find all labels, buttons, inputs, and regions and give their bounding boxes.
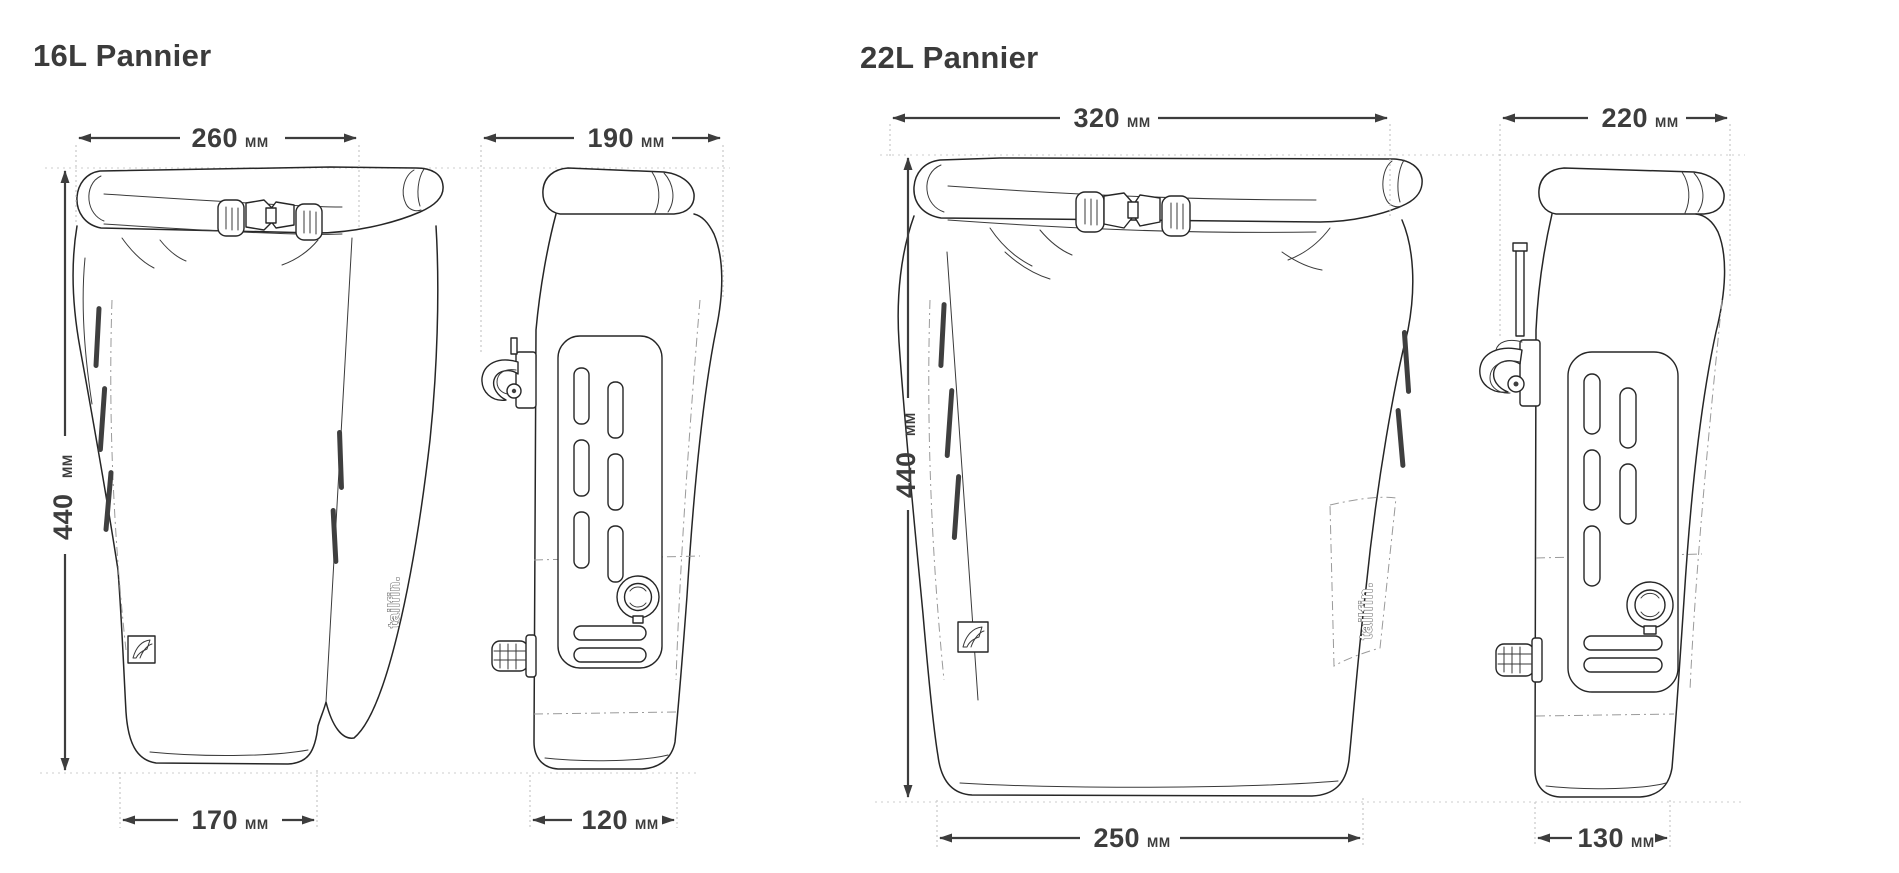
svg-text:170: 170 xyxy=(191,805,238,835)
svg-text:MM: MM xyxy=(1127,115,1151,130)
dim-22l-side-top-width: 220 MM xyxy=(1503,103,1727,133)
pannier-16l-side-view xyxy=(482,168,722,769)
pannier-22l-title: 22L Pannier xyxy=(860,40,1038,75)
qr-hook xyxy=(482,338,536,408)
svg-text:320: 320 xyxy=(1073,103,1120,133)
pannier-22l-side-view xyxy=(1480,168,1725,797)
pannier-16l-title: 16L Pannier xyxy=(33,38,211,73)
mounting-plate xyxy=(558,336,662,668)
svg-text:250: 250 xyxy=(1093,823,1140,853)
dim-22l-height: 440 MM xyxy=(891,158,921,797)
svg-text:260: 260 xyxy=(191,123,238,153)
mounting-plate xyxy=(1568,352,1678,692)
svg-text:MM: MM xyxy=(245,817,269,832)
svg-text:tailfin.: tailfin. xyxy=(386,576,403,628)
svg-text:tailfin.: tailfin. xyxy=(1356,582,1376,640)
roll-top-strap xyxy=(948,186,1316,236)
dim-22l-side-bottom-width: 130 MM xyxy=(1538,823,1667,853)
svg-text:MM: MM xyxy=(1655,115,1679,130)
svg-text:MM: MM xyxy=(245,135,269,150)
svg-text:MM: MM xyxy=(641,135,665,150)
pannier-22l: tailfin. xyxy=(890,103,1730,853)
dim-16l-front-bottom-width: 170 MM xyxy=(123,805,314,835)
roll-top-side xyxy=(543,168,694,214)
brand-logo-text-16l: tailfin. xyxy=(386,576,403,628)
rail-peg xyxy=(1496,638,1542,682)
qr-hook xyxy=(1480,243,1540,406)
svg-text:MM: MM xyxy=(1147,835,1171,850)
dim-16l-side-top-width: 190 MM xyxy=(484,123,720,153)
svg-text:MM: MM xyxy=(60,454,75,478)
svg-text:120: 120 xyxy=(581,805,628,835)
brand-logo-text-22l: tailfin. xyxy=(1356,582,1376,640)
pannier-22l-front-view: tailfin. xyxy=(898,158,1422,796)
roll-top-side xyxy=(1539,168,1724,214)
dim-16l-side-bottom-width: 120 MM xyxy=(533,805,674,835)
pannier-16l-front-view: tailfin. xyxy=(73,167,443,764)
dim-16l-front-top-width: 260 MM xyxy=(79,123,356,153)
fin-logo-mark xyxy=(128,636,155,663)
svg-text:130: 130 xyxy=(1577,823,1624,853)
dimension-diagram: 16L Pannier 22L Pannier xyxy=(0,0,1899,873)
svg-text:MM: MM xyxy=(903,412,918,436)
svg-text:440: 440 xyxy=(891,451,921,498)
fin-logo-mark xyxy=(958,622,988,652)
rail-slots-edge xyxy=(93,306,344,564)
roll-top-strap xyxy=(104,194,342,240)
dimension-diagram-page: 16L Pannier 22L Pannier xyxy=(0,0,1899,873)
rail-slots-edge xyxy=(938,302,1411,540)
bag-body-outline xyxy=(73,226,438,764)
rail-peg xyxy=(492,635,536,677)
dim-22l-front-bottom-width: 250 MM xyxy=(940,823,1360,853)
svg-text:440: 440 xyxy=(48,493,78,540)
svg-text:MM: MM xyxy=(1631,835,1655,850)
dim-22l-front-top-width: 320 MM xyxy=(893,103,1387,133)
svg-text:220: 220 xyxy=(1601,103,1648,133)
pannier-16l: tailfin. xyxy=(48,123,723,835)
bag-body-outline xyxy=(898,216,1413,796)
svg-text:190: 190 xyxy=(587,123,634,153)
svg-text:MM: MM xyxy=(635,817,659,832)
